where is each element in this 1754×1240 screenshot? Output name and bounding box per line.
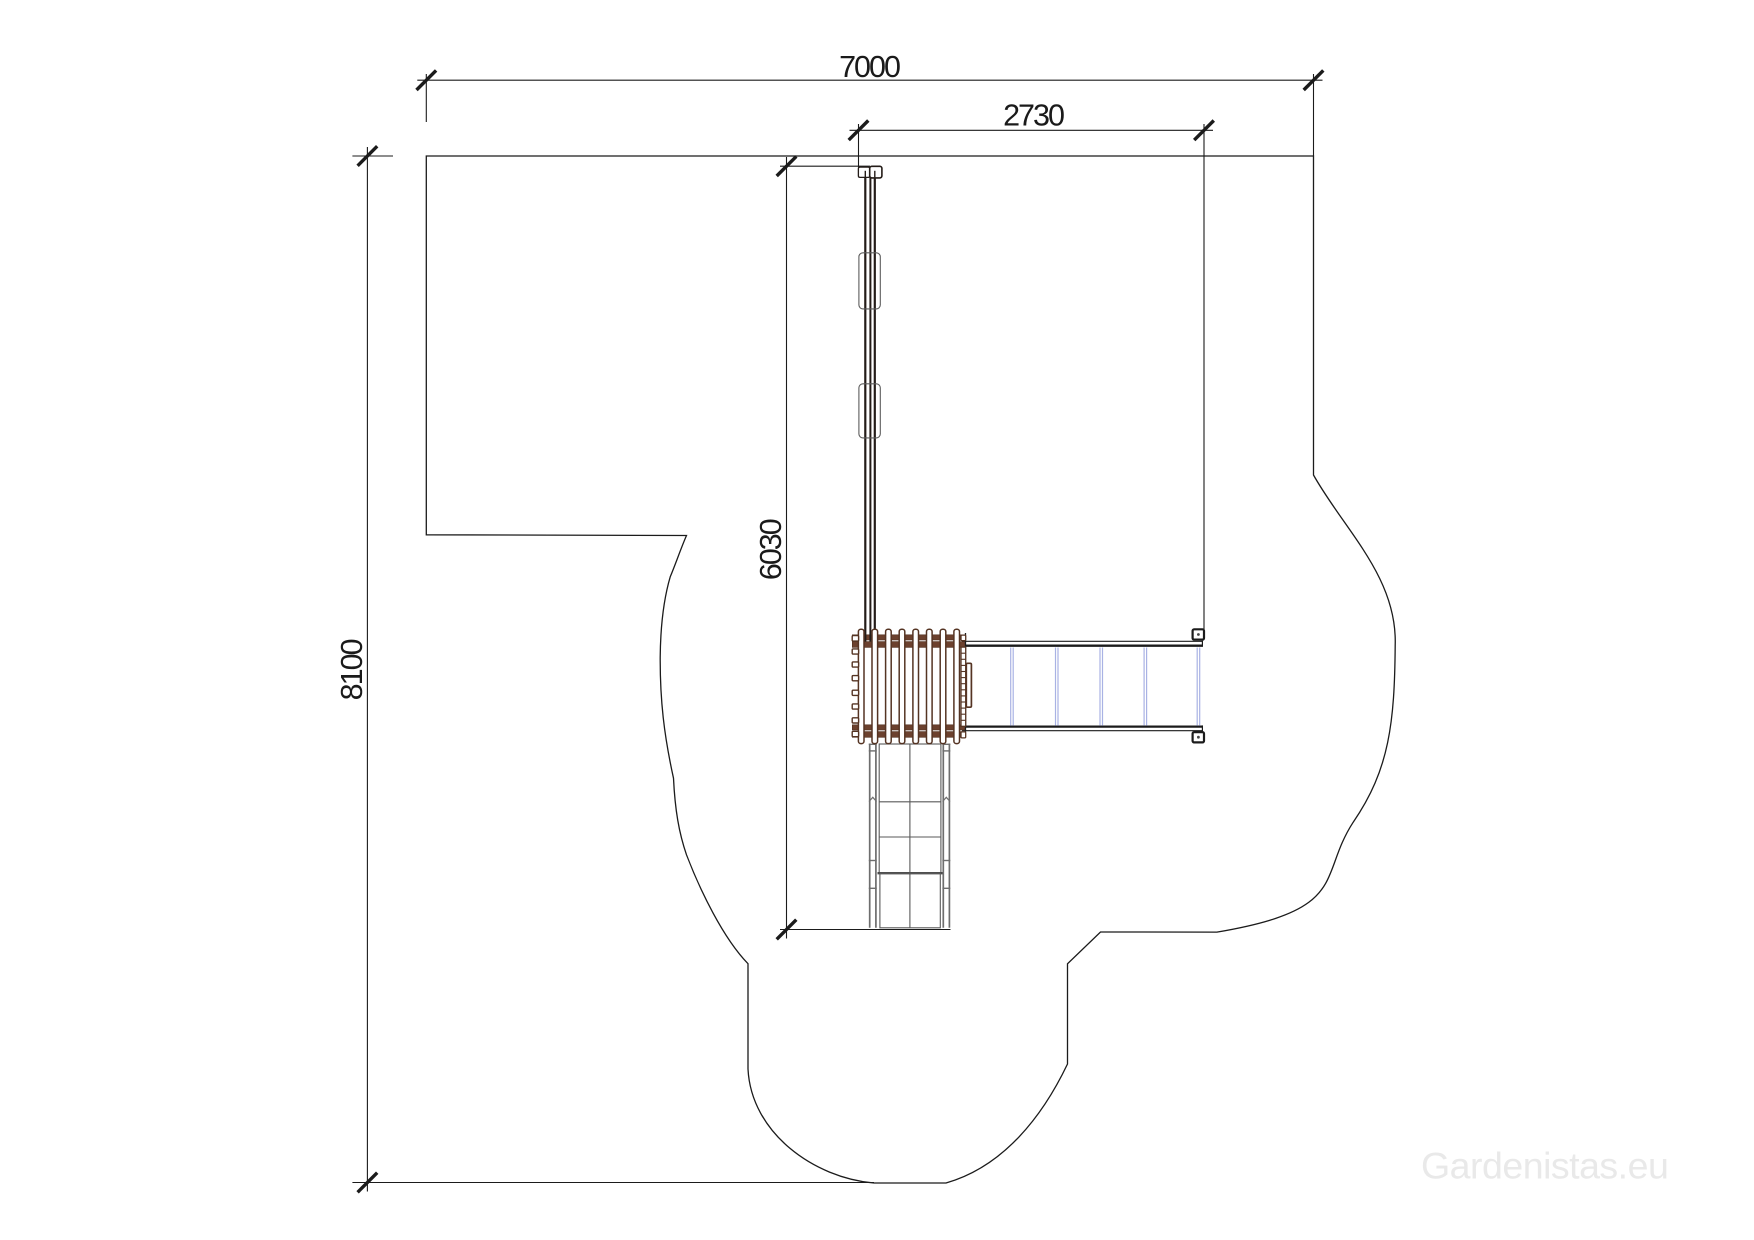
svg-text:2730: 2730 xyxy=(1003,98,1064,132)
svg-text:Gardenistas.eu: Gardenistas.eu xyxy=(1421,1145,1668,1187)
svg-text:6030: 6030 xyxy=(754,519,788,580)
svg-text:7000: 7000 xyxy=(839,50,900,84)
svg-text:8100: 8100 xyxy=(335,639,369,700)
